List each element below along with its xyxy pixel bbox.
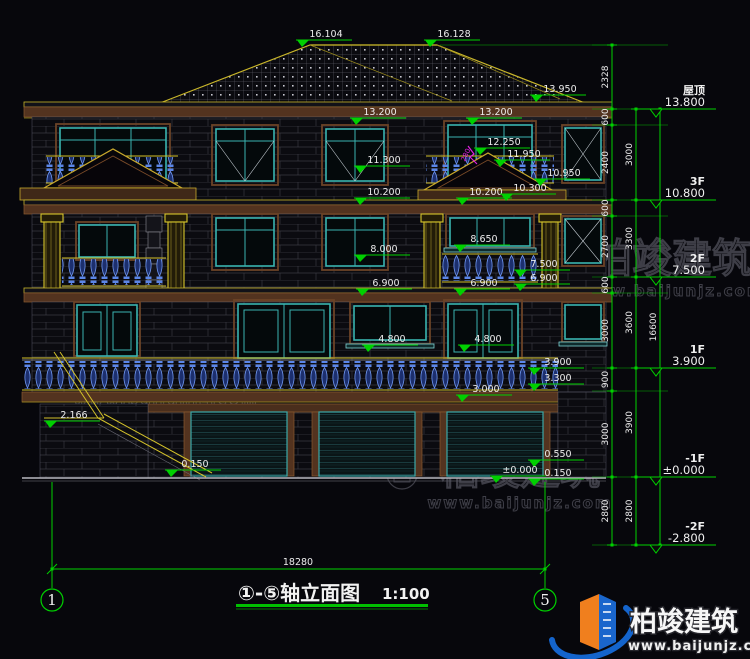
- svg-text:8.000: 8.000: [370, 244, 397, 255]
- svg-text:16.128: 16.128: [437, 29, 470, 40]
- svg-text:3600: 3600: [625, 311, 635, 334]
- svg-text:6.900: 6.900: [372, 278, 399, 289]
- bottom-dimension: 18280: [283, 557, 313, 568]
- window-1f-far-right: [559, 302, 607, 346]
- drawing-title: ①-⑤轴立面图 1:100: [236, 581, 430, 610]
- entablature-left: [20, 188, 196, 200]
- logo-building-icon: [580, 594, 599, 650]
- window-2f-center-a: [212, 214, 278, 270]
- svg-text:3000: 3000: [625, 143, 635, 166]
- svg-text:13.800: 13.800: [665, 95, 705, 109]
- svg-text:3000: 3000: [601, 319, 611, 342]
- svg-text:2400: 2400: [601, 151, 611, 174]
- dimension-chain: 30003300360039002800: [625, 108, 641, 547]
- svg-text:www.baijunjz.com: www.baijunjz.com: [427, 494, 612, 512]
- balustrade-2f-left: [62, 258, 166, 286]
- svg-text:3.900: 3.900: [672, 354, 705, 368]
- title-text: ①-⑤轴立面图: [238, 581, 360, 605]
- svg-text:2.166: 2.166: [60, 410, 87, 421]
- svg-text:3.900: 3.900: [544, 357, 571, 368]
- svg-text:16.104: 16.104: [309, 29, 342, 40]
- svg-text:6.900: 6.900: [530, 273, 557, 284]
- svg-text:2800: 2800: [625, 499, 635, 522]
- eave-cornice: [24, 102, 612, 118]
- svg-text:13.200: 13.200: [479, 107, 512, 118]
- level-marker: 屋顶13.800: [640, 84, 716, 117]
- building-facade: [20, 45, 612, 481]
- logo-url-text: www.baijunjz.com: [628, 639, 750, 654]
- elevation-label: 16.104: [296, 29, 352, 47]
- svg-text:4.800: 4.800: [474, 334, 501, 345]
- svg-text:8.650: 8.650: [470, 234, 497, 245]
- level-marker: 3F10.800: [640, 175, 716, 208]
- svg-text:11.300: 11.300: [367, 155, 400, 166]
- axis-bubble-1: 1: [41, 589, 63, 611]
- window-2f-center-b: [322, 214, 388, 270]
- svg-text:1: 1: [47, 591, 57, 609]
- wall-left-base: [40, 404, 148, 478]
- level-marker: 1F3.900: [640, 343, 716, 376]
- level-marker: -2F-2.800: [640, 520, 716, 553]
- svg-text:±0.000: ±0.000: [502, 465, 537, 476]
- door-1f-left: [74, 302, 140, 356]
- svg-text:600: 600: [601, 199, 611, 216]
- svg-text:13.950: 13.950: [543, 84, 576, 95]
- floor-band-10200: [24, 200, 612, 214]
- svg-text:4.800: 4.800: [378, 334, 405, 345]
- svg-text:10.200: 10.200: [367, 187, 400, 198]
- svg-text:6.900: 6.900: [470, 278, 497, 289]
- window-3f-center-a: [212, 125, 278, 185]
- svg-text:2328: 2328: [601, 65, 611, 88]
- svg-text:900: 900: [601, 371, 611, 388]
- brand-logo: 柏竣建筑 www.baijunjz.com: [552, 594, 750, 658]
- title-scale: 1:100: [382, 585, 430, 603]
- svg-text:3.300: 3.300: [544, 373, 571, 384]
- svg-text:2700: 2700: [601, 235, 611, 258]
- svg-text:10.950: 10.950: [547, 168, 580, 179]
- cad-canvas: 柏竣建筑www.baijunjz.com柏竣建筑www.baijunjz.com…: [0, 0, 750, 659]
- elevation-label: 16.128: [424, 29, 480, 47]
- svg-text:12.250: 12.250: [487, 137, 520, 148]
- window-2f-far-right: [562, 216, 604, 266]
- svg-text:2800: 2800: [601, 499, 611, 522]
- svg-text:600: 600: [601, 108, 611, 125]
- svg-text:0.150: 0.150: [544, 468, 571, 479]
- door-1f-center: [234, 300, 334, 358]
- svg-text:±0.000: ±0.000: [662, 463, 705, 477]
- svg-text:3000: 3000: [601, 422, 611, 445]
- svg-text:0.550: 0.550: [544, 449, 571, 460]
- level-marker: -1F±0.000: [640, 452, 716, 485]
- axis-bubble-5: 5: [534, 589, 556, 611]
- window-2f-left: [76, 222, 138, 260]
- svg-text:3900: 3900: [625, 411, 635, 434]
- svg-text:3.000: 3.000: [472, 384, 499, 395]
- wall-right-base: [558, 392, 606, 478]
- svg-text:柏竣建筑: 柏竣建筑: [592, 236, 750, 282]
- logo-brand-text: 柏竣建筑: [630, 606, 738, 638]
- svg-text:10.300: 10.300: [513, 183, 546, 194]
- door-1f-right: [444, 300, 522, 358]
- svg-text:10.200: 10.200: [469, 187, 502, 198]
- svg-text:5: 5: [540, 591, 550, 609]
- svg-text:13.200: 13.200: [363, 107, 396, 118]
- garage-door: [312, 412, 422, 476]
- svg-text:3300: 3300: [625, 227, 635, 250]
- svg-text:7.500: 7.500: [672, 263, 705, 277]
- svg-text:-2.800: -2.800: [668, 531, 705, 545]
- svg-text:11.950: 11.950: [507, 149, 540, 160]
- svg-text:0.150: 0.150: [181, 459, 208, 470]
- hip-roof: [160, 45, 585, 103]
- svg-text:600: 600: [601, 276, 611, 293]
- svg-text:10.800: 10.800: [665, 186, 705, 200]
- svg-text:7.500: 7.500: [530, 259, 557, 270]
- elevation-drawing: 柏竣建筑www.baijunjz.com柏竣建筑www.baijunjz.com…: [0, 0, 750, 659]
- svg-text:16600: 16600: [649, 312, 659, 341]
